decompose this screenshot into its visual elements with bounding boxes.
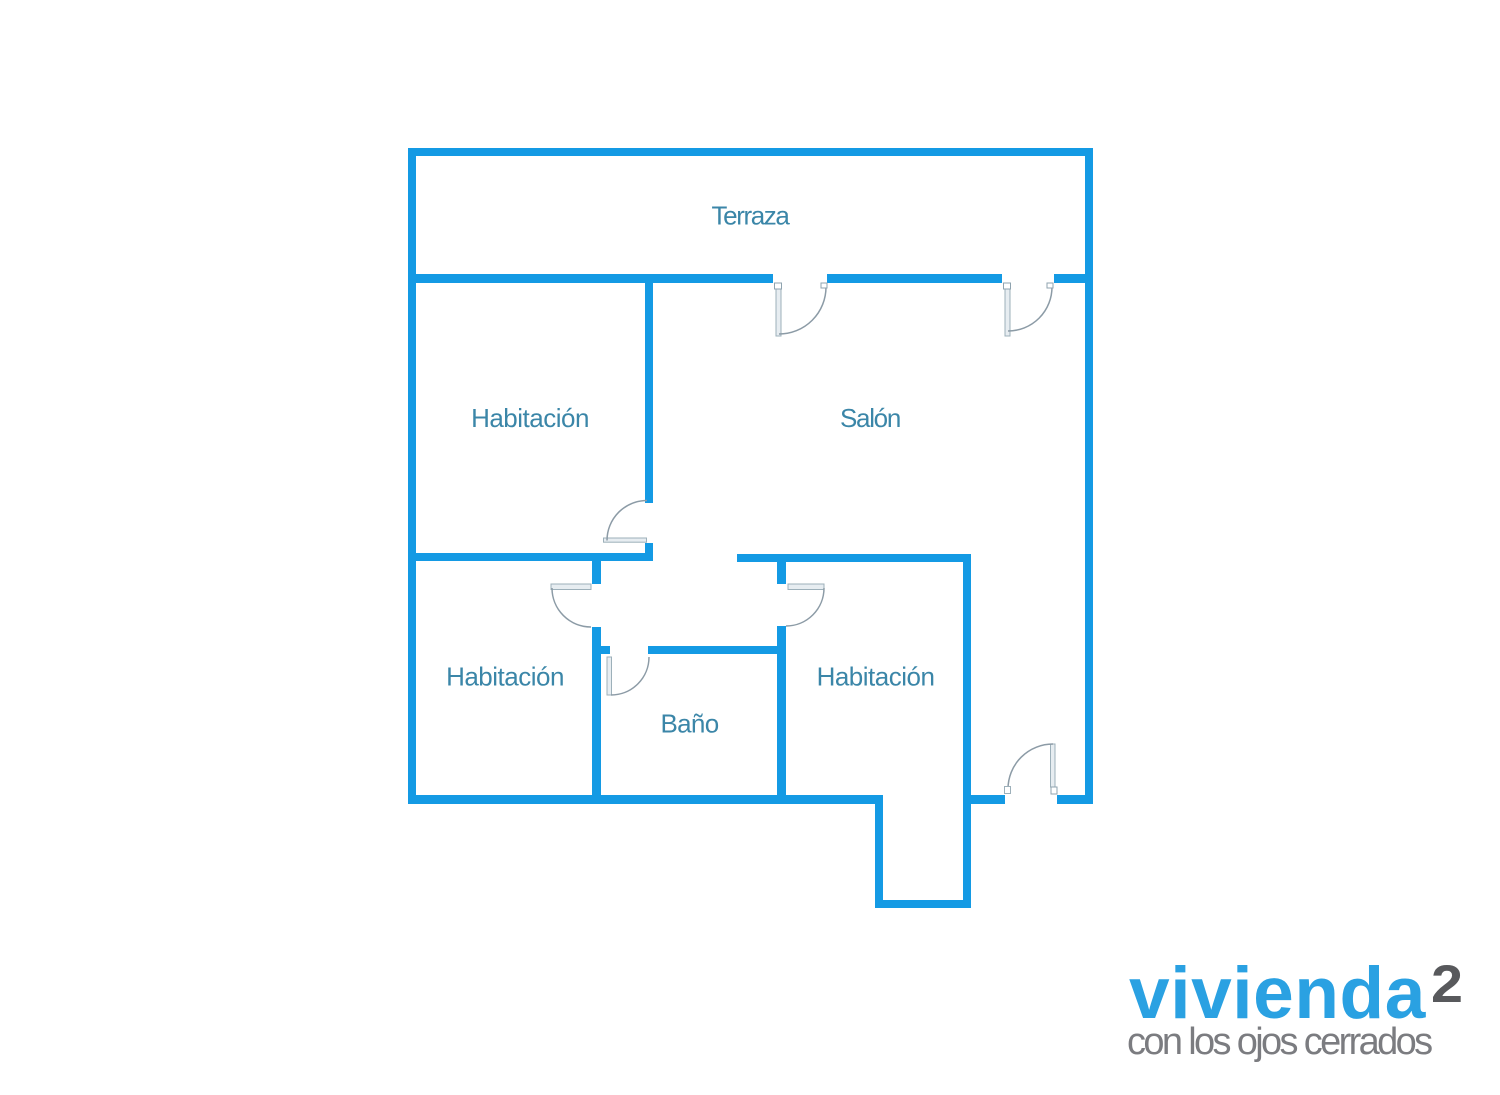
- svg-text:2: 2: [1431, 955, 1463, 1014]
- svg-text:Habitación: Habitación: [446, 662, 564, 692]
- svg-text:Terraza: Terraza: [712, 201, 791, 231]
- svg-text:Habitación: Habitación: [817, 662, 935, 692]
- svg-text:Habitación: Habitación: [471, 403, 589, 433]
- svg-text:Baño: Baño: [661, 709, 719, 739]
- svg-text:Salón: Salón: [840, 403, 900, 433]
- svg-text:con los ojos cerrados: con los ojos cerrados: [1127, 1021, 1432, 1063]
